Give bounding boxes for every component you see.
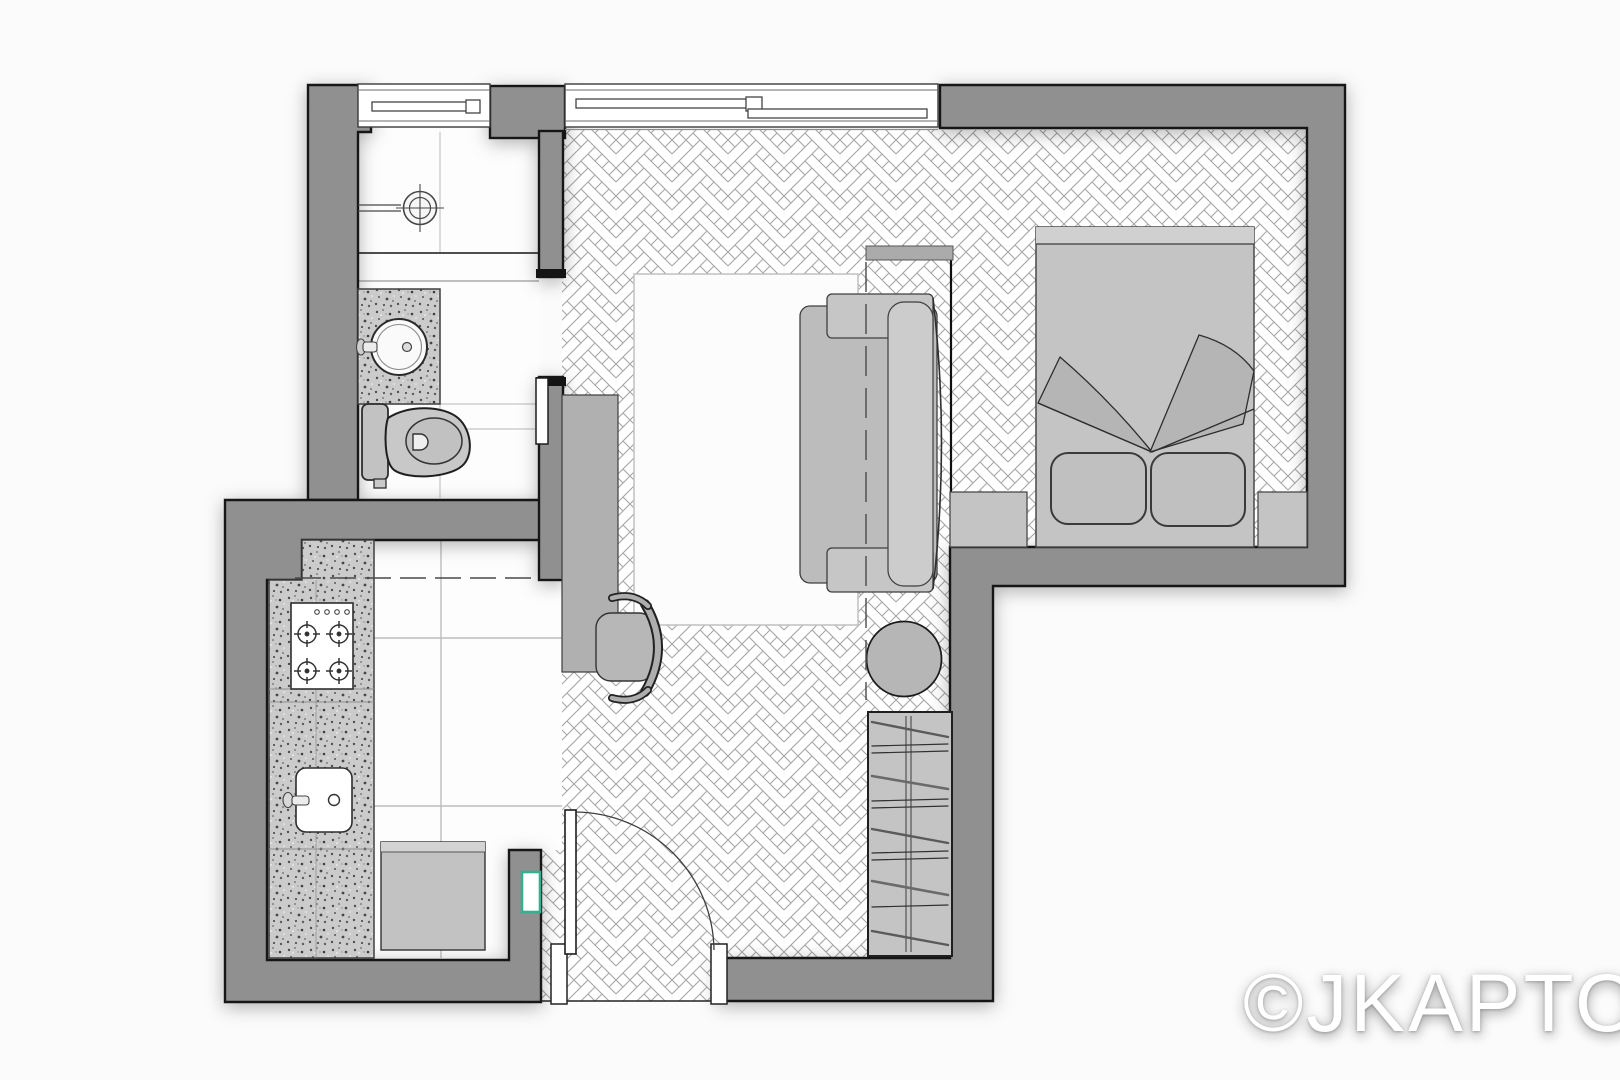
wall-end-caps — [536, 269, 566, 386]
cooktop — [291, 603, 353, 689]
utility-box — [522, 872, 540, 912]
pillow-left — [1051, 453, 1146, 524]
kitchen-table — [381, 842, 485, 950]
sofa — [800, 294, 942, 592]
vanity-basin — [371, 319, 427, 375]
flush-icon — [413, 434, 428, 450]
floor-plan-page: ©JKAPTO — [0, 0, 1620, 1080]
floor-plan-drawing — [0, 0, 1620, 1080]
footboard — [1036, 227, 1254, 244]
double-bed — [1036, 227, 1254, 547]
vanity — [357, 289, 441, 404]
nightstand-right — [1258, 492, 1307, 547]
wall-bath-partition-upper — [539, 131, 563, 277]
door-leaf — [565, 810, 576, 954]
pillow-right — [1151, 453, 1245, 526]
wardrobe — [868, 712, 952, 956]
side-table — [867, 622, 942, 697]
pocket-door — [536, 378, 548, 444]
bathroom-window — [358, 84, 490, 127]
sofa-back-cushion — [888, 302, 933, 586]
nightstand-left — [950, 492, 1027, 547]
wall-shelf — [866, 246, 953, 260]
windows — [358, 84, 938, 130]
living-room-window — [565, 84, 938, 130]
